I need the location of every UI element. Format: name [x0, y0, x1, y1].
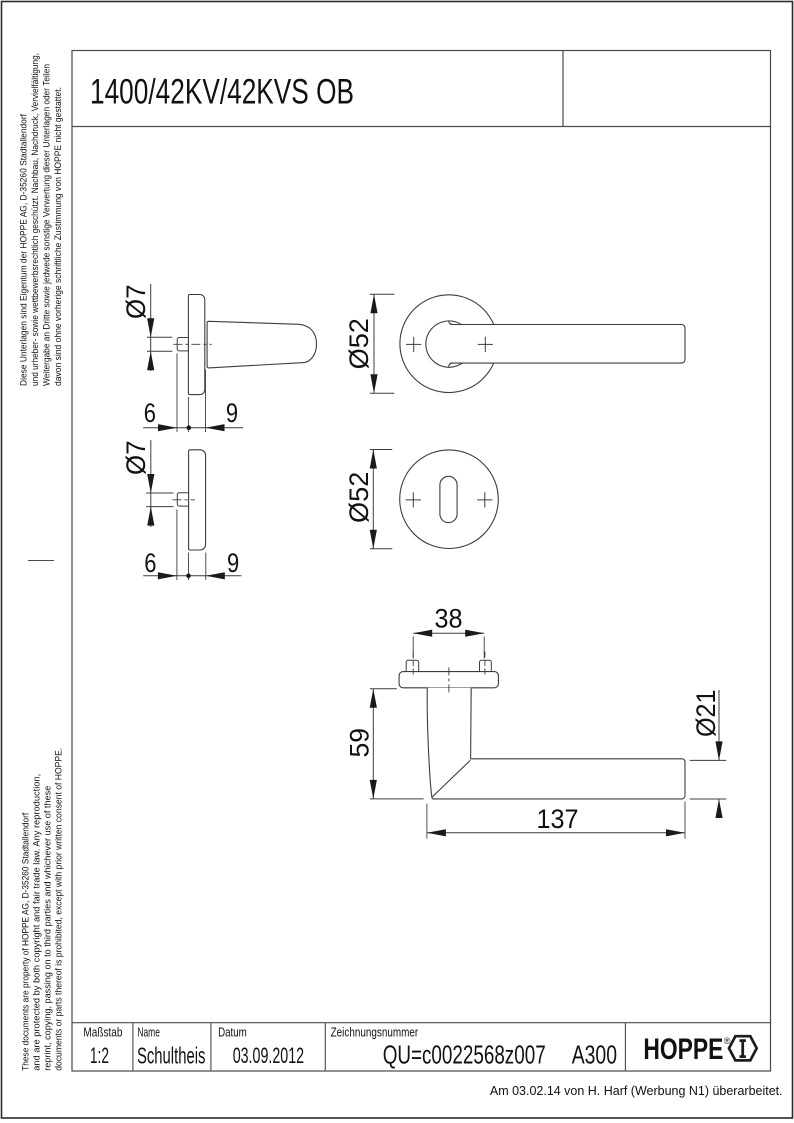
svg-text:reprint, copying, passing on t: reprint, copying, passing on to third pa… — [42, 786, 53, 1071]
svg-text:Name: Name — [137, 1025, 160, 1040]
svg-text:HOPPE: HOPPE — [643, 1033, 723, 1066]
svg-text:Ø7: Ø7 — [121, 441, 151, 476]
svg-text:137: 137 — [537, 804, 579, 834]
svg-text:Weitergabe an Dritte sowie jed: Weitergabe an Dritte sowie jedwede sonst… — [42, 64, 53, 386]
svg-text:03.09.2012: 03.09.2012 — [233, 1043, 304, 1068]
svg-text:Ø21: Ø21 — [691, 690, 721, 738]
svg-text:9: 9 — [227, 548, 239, 578]
svg-text:Diese Unterlagen sind Eigentum: Diese Unterlagen sind Eigentum der HOPPE… — [18, 114, 29, 386]
svg-text:QU=c0022568z007: QU=c0022568z007 — [383, 1040, 546, 1070]
svg-text:These documents are property o: These documents are property of HOPPE AG… — [21, 812, 32, 1070]
svg-text:documents or parts thereof is: documents or parts thereof is prohibited… — [53, 748, 64, 1071]
svg-text:6: 6 — [144, 398, 156, 428]
svg-text:Datum: Datum — [218, 1025, 247, 1040]
svg-text:und urheber- sowie wettbewerbs: und urheber- sowie wettbewerbsrechtlich … — [30, 53, 41, 386]
svg-text:A300: A300 — [572, 1040, 617, 1070]
svg-text:1:2: 1:2 — [90, 1043, 109, 1068]
svg-text:and are protected by both copy: and are protected by both copyright and … — [32, 774, 43, 1071]
svg-text:davon sind ohne vorherige schr: davon sind ohne vorherige schriftliche Z… — [53, 87, 64, 386]
svg-text:Ø52: Ø52 — [344, 472, 374, 523]
svg-text:38: 38 — [435, 603, 463, 633]
svg-text:1400/42KV/42KVS OB: 1400/42KV/42KVS OB — [90, 73, 354, 112]
svg-text:6: 6 — [144, 548, 156, 578]
svg-text:9: 9 — [226, 398, 238, 428]
svg-text:59: 59 — [344, 728, 374, 758]
svg-text:Ø52: Ø52 — [344, 318, 374, 369]
svg-text:Zeichnungsnummer: Zeichnungsnummer — [331, 1025, 419, 1040]
svg-text:Maßstab: Maßstab — [83, 1025, 122, 1040]
svg-text:Ø7: Ø7 — [121, 285, 151, 320]
svg-text:Am 03.02.14 von H. Harf (Werbu: Am 03.02.14 von H. Harf (Werbung N1) übe… — [490, 1083, 783, 1098]
svg-text:Schultheis: Schultheis — [137, 1043, 205, 1069]
